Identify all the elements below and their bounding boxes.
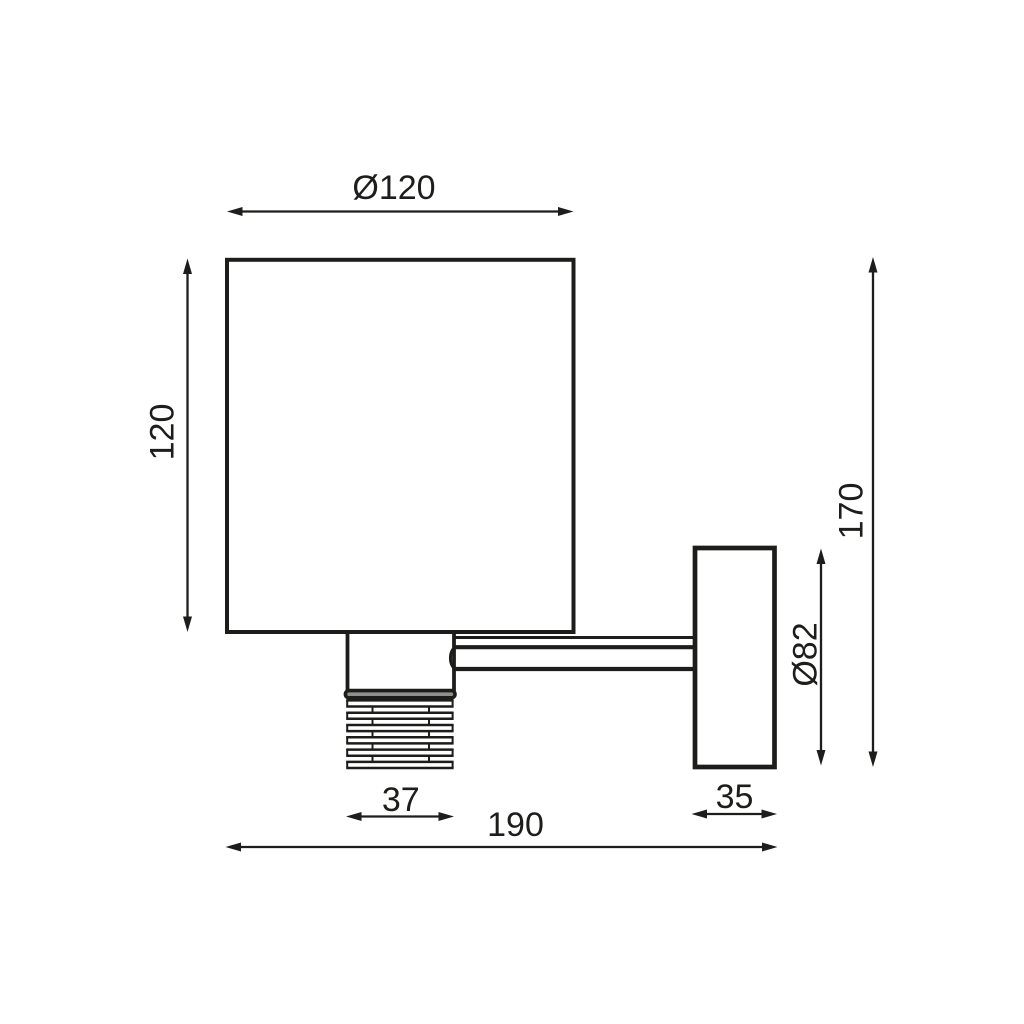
svg-text:Ø120: Ø120 [352, 169, 435, 207]
svg-text:190: 190 [487, 806, 544, 844]
svg-text:120: 120 [144, 404, 182, 461]
svg-text:35: 35 [716, 778, 754, 816]
svg-text:170: 170 [833, 483, 871, 540]
svg-text:Ø82: Ø82 [787, 622, 825, 686]
svg-text:37: 37 [382, 781, 420, 819]
